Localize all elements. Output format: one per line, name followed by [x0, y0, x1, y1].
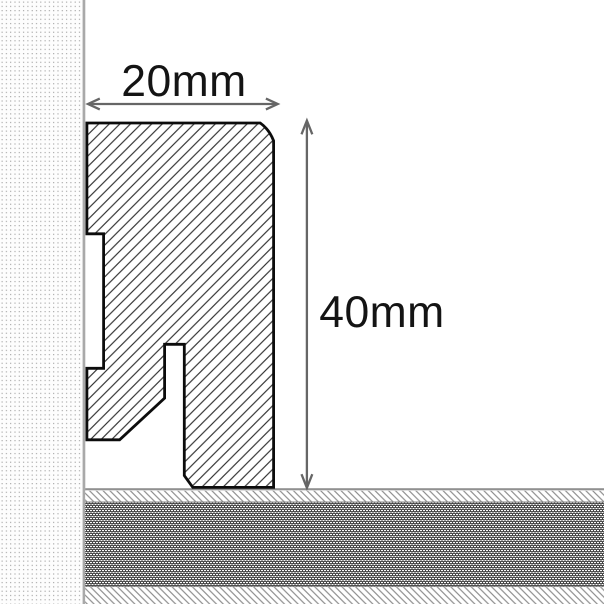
svg-text:20mm: 20mm	[121, 57, 246, 106]
svg-text:40mm: 40mm	[319, 288, 444, 337]
